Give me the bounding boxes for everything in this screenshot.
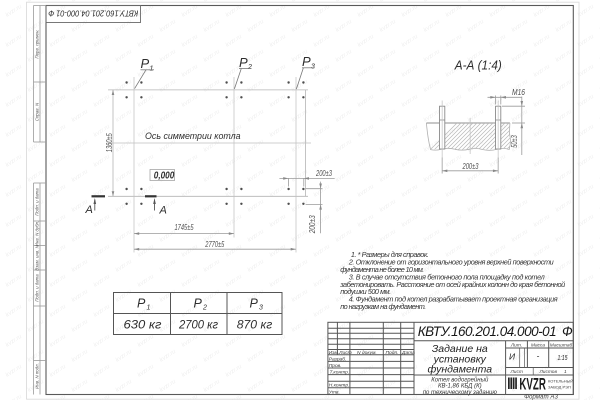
svg-text:Н.контр.: Н.контр. [329,383,350,389]
svg-text:2770±5: 2770±5 [205,239,225,249]
svg-text:КВТУ.160.201.04.000-01: КВТУ.160.201.04.000-01 [418,324,557,339]
svg-text:КОТЕЛЬНЫЙ: КОТЕЛЬНЫЙ [548,379,573,384]
svg-text:50±3: 50±3 [509,135,519,148]
svg-text:Подп. и дата: Подп. и дата [35,188,40,216]
svg-text:фундамента: фундамента [428,364,493,376]
svg-text:3: 3 [311,63,315,70]
svg-text:Формат А3: Формат А3 [524,394,558,400]
svg-text:Справ. N: Справ. N [35,102,40,121]
svg-text:1:15: 1:15 [558,353,569,362]
svg-text:0,000: 0,000 [154,171,175,182]
svg-text:A: A [159,205,167,217]
svg-text:P: P [239,55,248,70]
svg-text:P: P [194,297,203,311]
svg-text:1360±5: 1360±5 [104,133,114,152]
svg-text:200±3: 200±3 [307,215,317,234]
svg-text:N докум.: N докум. [357,350,377,356]
svg-text:Пров.: Пров. [329,363,342,369]
svg-text:Ф: Ф [562,324,573,339]
svg-text:1745±5: 1745±5 [175,222,194,232]
svg-text:Масса: Масса [531,342,546,348]
svg-text:по нагрузкам на фундамент.: по нагрузкам на фундамент. [340,302,426,311]
svg-text:Т.контр.: Т.контр. [330,370,350,376]
svg-text:P: P [302,54,311,69]
svg-text:200±3: 200±3 [315,168,332,178]
svg-text:Взам. инв. N: Взам. инв. N [35,244,40,270]
svg-text:Изм.Лист: Изм.Лист [329,350,352,356]
svg-text:200±3: 200±3 [462,161,479,171]
svg-text:Разраб.: Разраб. [329,356,347,362]
svg-text:2700 кг: 2700 кг [178,318,218,332]
svg-text:Дата: Дата [401,350,415,356]
svg-text:P: P [250,297,259,311]
svg-text:Инв. N дубл.: Инв. N дубл. [35,221,40,246]
svg-text:P: P [137,297,146,311]
svg-text:870 кг: 870 кг [237,318,273,332]
svg-text:КВТУ.160.201.04.000-01 Ф: КВТУ.160.201.04.000-01 Ф [48,8,138,17]
svg-text:3: 3 [259,305,263,312]
svg-text:2: 2 [202,305,207,312]
svg-text:И: И [509,352,516,362]
svg-text:Масштаб: Масштаб [550,342,573,348]
svg-text:Подп. и дата: Подп. и дата [35,274,40,302]
svg-text:Котел водогрейный: Котел водогрейный [431,376,489,383]
svg-text:1: 1 [147,305,151,312]
svg-text:1: 1 [150,65,154,72]
svg-text:Подп.: Подп. [386,350,399,356]
svg-text:по техническому заданию: по техническому заданию [423,390,498,396]
svg-text:Ось симметрии котла: Ось симметрии котла [145,131,241,142]
svg-text:Лит.: Лит. [510,342,522,348]
svg-text:Перв. примен.: Перв. примен. [35,29,40,58]
svg-text:ЗАВОД РЭП: ЗАВОД РЭП [548,385,571,390]
svg-text:КВ-1,86 КБД (К): КВ-1,86 КБД (К) [438,384,482,390]
svg-text:1: 1 [564,369,567,375]
svg-text:KVZR: KVZR [519,375,546,394]
svg-text:-: - [537,351,540,361]
svg-text:A: A [85,204,93,216]
svg-text:Утв.: Утв. [329,389,340,395]
svg-text:P: P [141,56,150,71]
svg-text:А-А (1:4): А-А (1:4) [454,59,502,73]
svg-text:М16: М16 [512,87,525,97]
svg-text:630 кг: 630 кг [124,318,162,332]
svg-text:Инв. N подл.: Инв. N подл. [35,363,40,389]
svg-text:2: 2 [247,64,252,71]
